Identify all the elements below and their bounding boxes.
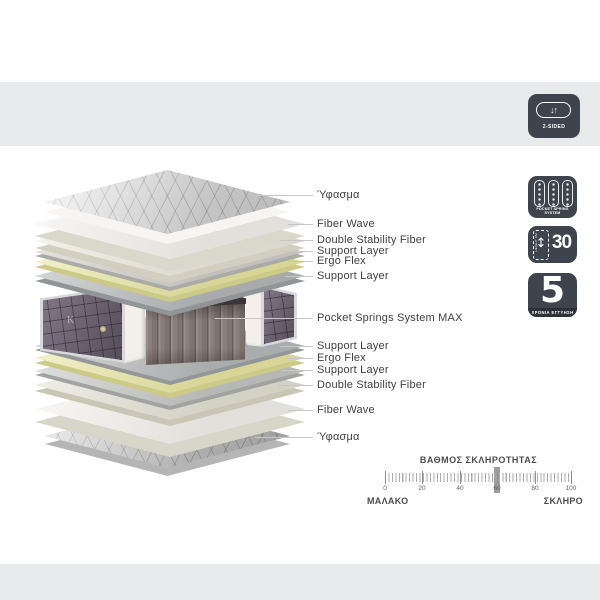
layer-support-top-1	[35, 217, 305, 309]
product-sheet: ↓↑ 2-SIDED K	[0, 0, 600, 600]
warranty-badge: 5 ΧΡΟΝΙΑ ΕΓΓΥΗΣΗ	[528, 273, 577, 317]
brand-monogram: K	[67, 315, 74, 326]
spring-coil-icon	[534, 180, 545, 207]
quilted-side-panel-right	[261, 285, 297, 347]
footer-bar	[0, 564, 600, 600]
layer-support-top-2	[35, 241, 305, 333]
pocket-spring-badge: POCKET SPRING SYSTEM	[528, 176, 577, 218]
foam-edge-left	[122, 297, 145, 364]
hard-label: ΣΚΛΗΡΟ	[530, 496, 583, 506]
spring-coil-icon	[562, 180, 573, 207]
layer-double-stability-top	[35, 206, 305, 298]
air-vent-icon	[100, 326, 106, 332]
pocket-spring-badge-label: POCKET SPRING SYSTEM	[528, 207, 577, 215]
two-sided-arrows-icon: ↓↑	[536, 102, 571, 118]
tick-40: 40	[452, 485, 468, 492]
layer-fiber-wave-top	[35, 189, 305, 281]
major-tick	[460, 471, 461, 484]
hardness-scale-title: ΒΑΘΜΟΣ ΣΚΛΗΡΟΤΗΤΑΣ	[385, 455, 572, 465]
layer-support-bottom-2	[35, 336, 305, 428]
layer-support-bottom-1	[35, 311, 305, 403]
height-badge: HEIGHT CM ↕ 30	[528, 226, 577, 263]
tick-0: 0	[377, 485, 393, 492]
header-bar	[0, 82, 600, 146]
tick-20: 20	[414, 485, 430, 492]
layer-fiber-wave-bottom	[35, 374, 305, 466]
two-sided-badge: ↓↑ 2-SIDED	[528, 94, 580, 138]
tick-80: 80	[527, 485, 543, 492]
height-measure-icon: HEIGHT CM ↕	[533, 230, 549, 260]
height-value: 30	[548, 232, 575, 254]
tick-100: 100	[563, 485, 579, 492]
soft-label: ΜΑΛΑΚΟ	[367, 496, 408, 506]
spring-coil-icon	[548, 180, 559, 207]
tick-60: 60	[489, 485, 505, 492]
layer-fabric-bottom	[45, 404, 290, 488]
quilted-side-panel-left: K	[40, 286, 125, 363]
hardness-ruler	[385, 473, 572, 482]
warranty-label: ΧΡΟΝΙΑ ΕΓΓΥΗΣΗ	[528, 308, 577, 317]
pocket-springs	[146, 304, 245, 365]
major-tick	[535, 471, 536, 484]
major-tick	[571, 471, 572, 484]
major-tick	[385, 471, 386, 484]
layer-ergo-flex-top	[35, 227, 305, 319]
warranty-years: 5	[528, 273, 577, 311]
major-tick	[497, 471, 498, 484]
springs-top-face	[113, 283, 257, 319]
layer-fabric-top	[45, 170, 290, 254]
double-arrow-icon: ↕	[534, 237, 548, 250]
layer-double-stability-bottom	[35, 350, 305, 442]
major-tick	[422, 471, 423, 484]
layer-ergo-flex-bottom	[35, 323, 305, 415]
two-sided-label: 2-SIDED	[528, 124, 580, 130]
